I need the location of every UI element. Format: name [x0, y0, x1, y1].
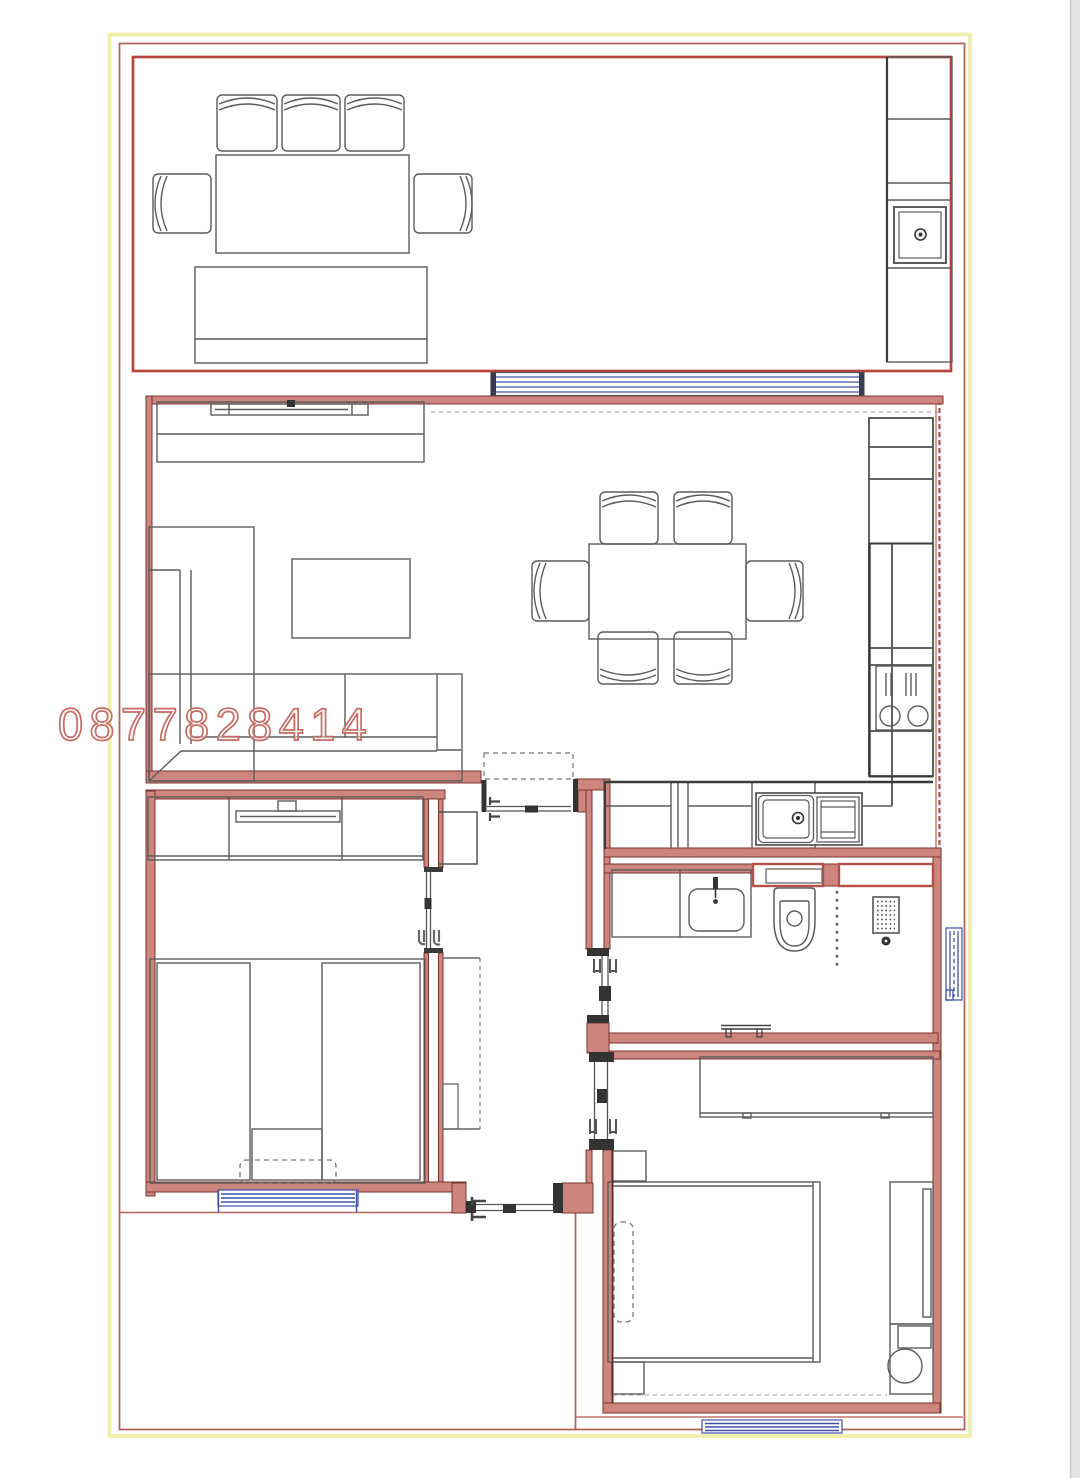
svg-text:0877828414: 0877828414: [58, 699, 373, 750]
